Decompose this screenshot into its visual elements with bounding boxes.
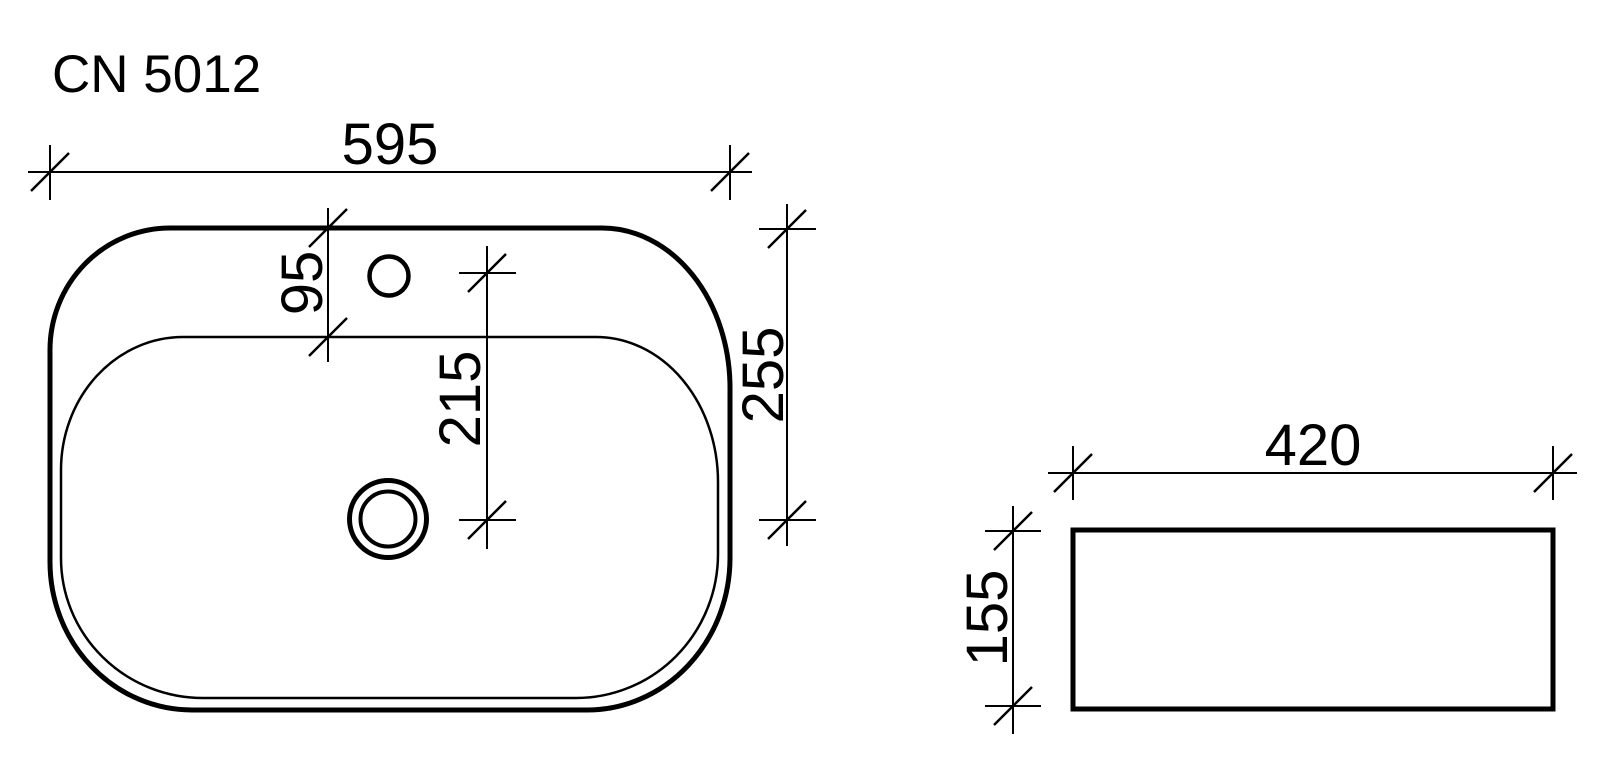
dim-overall-width-label: 595 — [342, 112, 439, 177]
dim-height-label: 155 — [955, 570, 1020, 667]
drawing-background — [0, 0, 1600, 763]
dim-rim-to-drain-label: 255 — [731, 327, 796, 424]
dim-depth-label: 420 — [1265, 413, 1362, 478]
technical-drawing: CN 5012 595 95 215 — [0, 0, 1600, 763]
dim-faucet-to-drain-label: 215 — [428, 351, 493, 448]
model-number: CN 5012 — [52, 45, 261, 104]
dim-rim-to-basin-label: 95 — [270, 251, 335, 316]
